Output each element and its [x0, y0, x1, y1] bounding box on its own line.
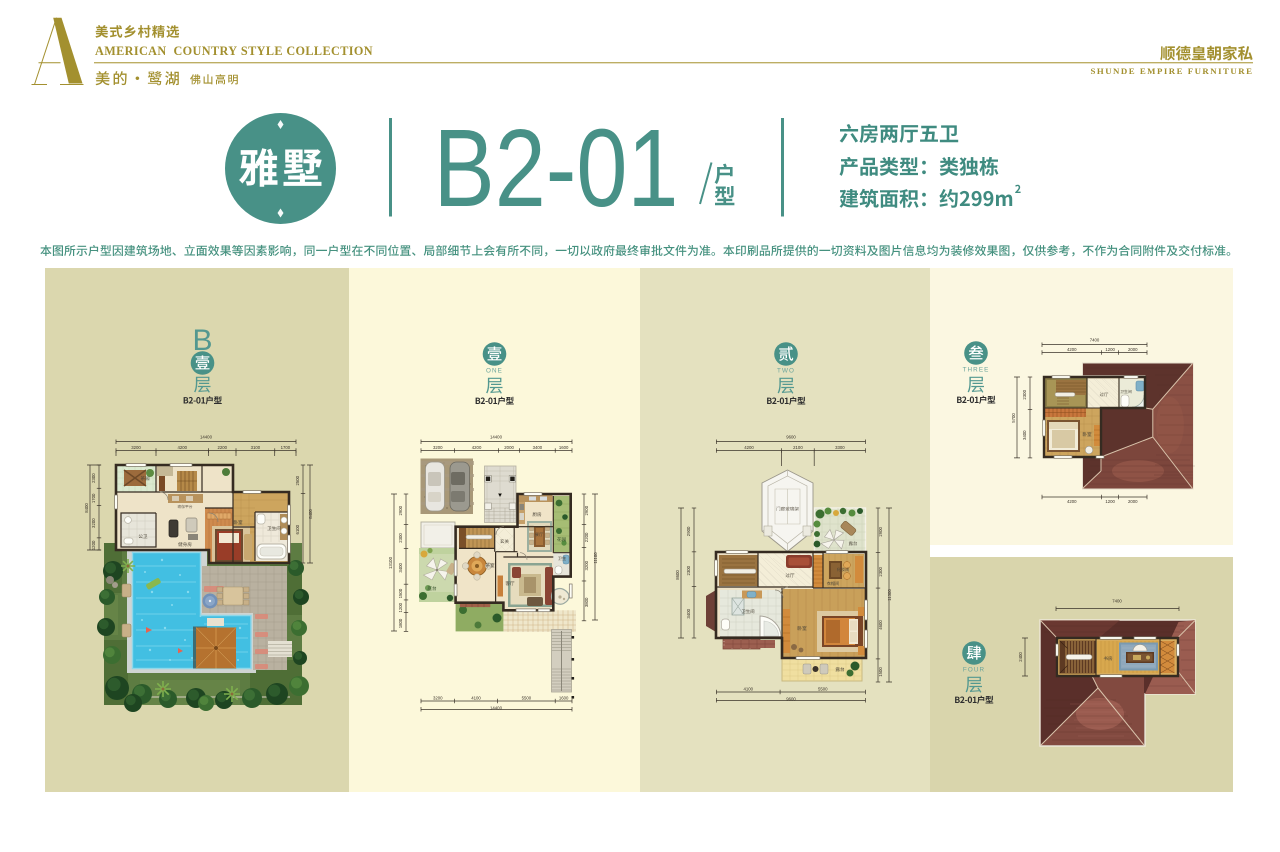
svg-text:1500: 1500	[878, 667, 883, 677]
svg-text:2300: 2300	[878, 566, 883, 576]
svg-text:5500: 5500	[522, 696, 532, 701]
svg-text:2300: 2300	[1022, 389, 1027, 399]
svg-text:2900: 2900	[584, 505, 589, 515]
svg-text:5700: 5700	[1011, 413, 1016, 423]
svg-text:2300: 2300	[686, 565, 691, 575]
svg-text:1200: 1200	[1105, 347, 1115, 352]
svg-text:2500: 2500	[295, 475, 300, 485]
svg-text:4100: 4100	[471, 696, 481, 701]
svg-text:4200: 4200	[744, 445, 754, 450]
svg-text:ONE: ONE	[486, 368, 503, 375]
svg-text:TWO: TWO	[777, 368, 795, 375]
svg-text:1800: 1800	[398, 618, 403, 628]
svg-text:1700: 1700	[91, 493, 96, 503]
svg-text:2900: 2900	[398, 505, 403, 515]
svg-text:7400: 7400	[1112, 599, 1122, 604]
svg-text:3200: 3200	[584, 560, 589, 570]
svg-text:11300: 11300	[887, 589, 892, 601]
svg-text:4200: 4200	[177, 445, 187, 450]
svg-text:2300: 2300	[91, 473, 96, 483]
svg-text:3100: 3100	[251, 445, 261, 450]
svg-text:11100: 11100	[593, 552, 598, 564]
svg-text:1200: 1200	[1105, 499, 1115, 504]
svg-text:8600: 8600	[675, 570, 680, 580]
svg-text:B2-01: B2-01	[434, 107, 679, 230]
svg-text:14400: 14400	[490, 435, 503, 440]
svg-text:3200: 3200	[131, 445, 141, 450]
svg-text:4600: 4600	[878, 620, 883, 630]
svg-text:3400: 3400	[1022, 430, 1027, 440]
svg-text:6100: 6100	[295, 524, 300, 534]
svg-text:1700: 1700	[281, 445, 291, 450]
svg-text:14400: 14400	[200, 435, 213, 440]
svg-text:2000: 2000	[1128, 499, 1138, 504]
svg-text:9600: 9600	[786, 435, 796, 440]
svg-text:1600: 1600	[559, 445, 569, 450]
svg-text:2400: 2400	[1018, 652, 1023, 662]
svg-text:5500: 5500	[818, 687, 828, 692]
svg-text:3800: 3800	[584, 597, 589, 607]
svg-text:2900: 2900	[878, 526, 883, 536]
svg-text:3200: 3200	[433, 696, 443, 701]
svg-text:1500: 1500	[398, 588, 403, 598]
svg-text:3400: 3400	[686, 608, 691, 618]
svg-text:3200: 3200	[91, 518, 96, 528]
svg-text:1200: 1200	[91, 540, 96, 550]
svg-text:13100: 13100	[388, 556, 393, 569]
svg-text:4100: 4100	[743, 687, 753, 692]
svg-text:3400: 3400	[533, 445, 543, 450]
svg-text:THREE: THREE	[963, 367, 990, 374]
svg-text:1600: 1600	[559, 696, 569, 701]
svg-text:2900: 2900	[686, 526, 691, 536]
svg-text:3400: 3400	[398, 562, 403, 572]
svg-text:1200: 1200	[398, 602, 403, 612]
svg-text:3300: 3300	[835, 445, 845, 450]
svg-text:8400: 8400	[84, 503, 89, 513]
svg-text:8400: 8400	[308, 509, 313, 519]
svg-text:3200: 3200	[433, 445, 443, 450]
svg-text:2200: 2200	[584, 532, 589, 542]
svg-text:FOUR: FOUR	[963, 667, 985, 674]
svg-text:2000: 2000	[1128, 347, 1138, 352]
svg-text:2300: 2300	[398, 533, 403, 543]
svg-text:AMERICAN COUNTRY STYLE COLLEC: AMERICAN COUNTRY STYLE COLLECTION	[95, 44, 373, 58]
svg-text:2200: 2200	[217, 445, 227, 450]
svg-text:2100: 2100	[793, 445, 803, 450]
svg-text:4200: 4200	[472, 445, 482, 450]
svg-text:2000: 2000	[504, 445, 514, 450]
svg-text:SHUNDE EMPIRE FURNITURE: SHUNDE EMPIRE FURNITURE	[1090, 66, 1253, 76]
svg-text:4200: 4200	[1067, 347, 1077, 352]
svg-text:7400: 7400	[1090, 338, 1100, 343]
svg-text:4200: 4200	[1067, 499, 1077, 504]
